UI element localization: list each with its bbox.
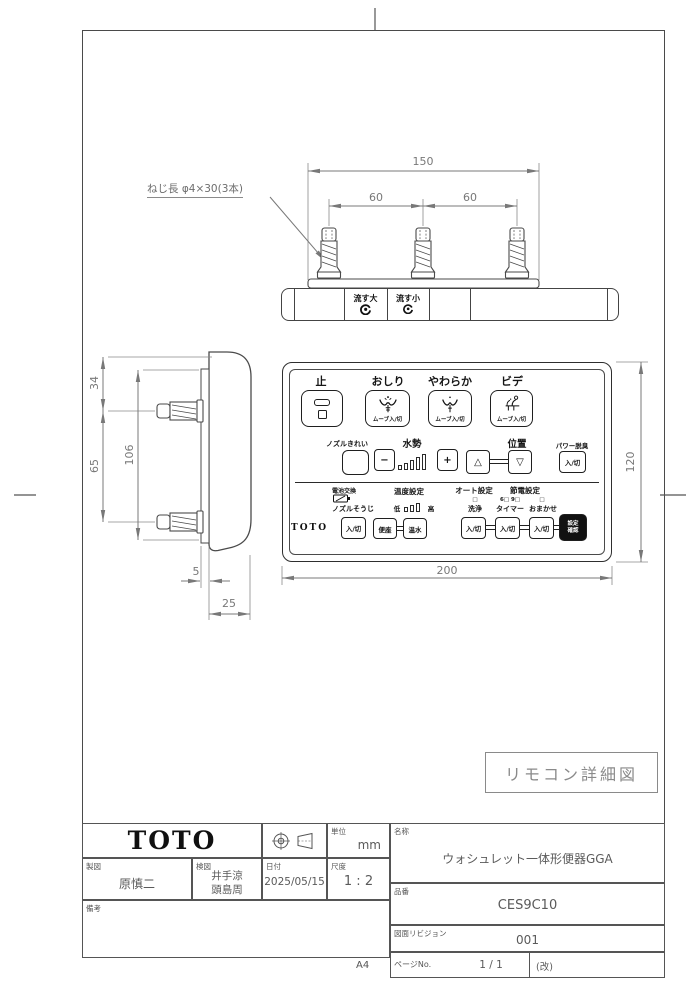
- rear-spray-icon: [376, 395, 400, 415]
- auto-wash-label: 洗浄: [462, 504, 488, 514]
- screw-icon: [412, 228, 435, 278]
- flush-small-label: 流す小: [396, 295, 420, 303]
- dim-pitch-right: 60: [445, 192, 495, 204]
- omakase-indicator: □: [534, 497, 550, 503]
- titleblock-scale-cell: 尺度 1 : 2: [327, 858, 390, 900]
- soft-spray-icon: [438, 395, 462, 415]
- power-deodorizer-label: パワー脱臭: [550, 440, 594, 450]
- move-onoff-label: ムーブ入/切: [435, 415, 464, 423]
- flush-large-label: 流す大: [354, 295, 378, 303]
- move-onoff-label: ムーブ入/切: [497, 415, 526, 423]
- dim-plate-thickness: 5: [186, 566, 206, 578]
- drawing-caption: リモコン詳細図: [505, 761, 638, 785]
- unit-label: 単位: [331, 826, 346, 837]
- top-view: [270, 163, 539, 288]
- titleblock-revision-cell: 図面リビジョン 001: [390, 925, 665, 952]
- dim-pitch-left: 60: [351, 192, 401, 204]
- flush-swirl-icon: [403, 304, 413, 314]
- setting-confirm-line2: 確認: [567, 528, 578, 535]
- setting-confirm-line1: 設定: [567, 521, 578, 528]
- titleblock-drafter-cell: 製図 原慎二: [82, 858, 192, 900]
- titleblock-unit-cell: 単位 mm: [327, 823, 390, 858]
- revision-value: 001: [391, 933, 664, 947]
- remote-brand-logo: TOTO: [291, 523, 327, 533]
- nozzle-wash-label: ノズルそうじ: [330, 504, 376, 514]
- date-value: 2025/05/15: [263, 876, 326, 888]
- unit-value: mm: [358, 838, 381, 852]
- titleblock-page-cell: ページNo. 1 / 1 (改): [390, 952, 665, 978]
- bidet-spray-icon: [500, 395, 524, 415]
- name-label: 名称: [394, 826, 409, 837]
- button-connector: [489, 459, 509, 464]
- position-label: 位置: [499, 436, 535, 450]
- energy-save-setting-label: 節電設定: [504, 485, 546, 496]
- auto-setting-label: オート設定: [452, 485, 496, 496]
- product-name: ウォシュレット一体形便器GGA: [391, 850, 664, 867]
- omakase-label: おまかせ: [527, 504, 559, 514]
- wash-indicator: □: [467, 497, 483, 503]
- third-angle-projection-icon: [272, 831, 318, 851]
- dim-screw-pitch-side: 65: [89, 449, 101, 483]
- move-onoff-label: ムーブ入/切: [373, 415, 402, 423]
- rear-wash-button: ムーブ入/切: [365, 390, 410, 427]
- position-down-button: ▽: [508, 450, 532, 474]
- soft-wash-label: やわらか: [420, 373, 480, 389]
- page-suffix: (改): [536, 959, 566, 973]
- page-label: ページNo.: [394, 959, 431, 970]
- temperature-level-bars: [404, 501, 424, 512]
- flush-large-button: 流す大: [344, 289, 387, 320]
- nozzle-wash-onoff-button: 入/切: [341, 517, 366, 539]
- page-value: 1 / 1: [451, 959, 531, 971]
- scale-label: 尺度: [331, 861, 346, 872]
- timer-hours-indicator: 6□ 9□: [495, 497, 525, 503]
- screw-icon: [506, 228, 529, 278]
- screw-icon: [157, 511, 203, 533]
- dim-overall-width: 150: [398, 156, 448, 168]
- battery-icon: [333, 494, 351, 503]
- panel-separator-line: [295, 482, 599, 483]
- screw-icon: [318, 228, 341, 278]
- stop-pill-icon: [314, 399, 330, 406]
- auto-wash-onoff-button: 入/切: [461, 517, 486, 539]
- checker-name-2: 頭島周: [193, 882, 261, 897]
- side-view: [103, 352, 251, 620]
- drawing-sheet: ねじ長 φ4×30(3本) 150 60 60 200 120 34 65 10…: [0, 0, 700, 991]
- titleblock-partno-cell: 品番 CES9C10: [390, 883, 665, 925]
- screw-length-note: ねじ長 φ4×30(3本): [147, 181, 243, 198]
- nozzle-clean-label: ノズルきれい: [322, 439, 372, 449]
- titleblock-logo-cell: TOTO: [82, 823, 262, 858]
- drafter-name: 原慎二: [83, 875, 191, 892]
- titleblock-remarks-cell: 備考: [82, 900, 390, 958]
- nozzle-clean-button: [342, 450, 369, 475]
- checker-name-1: 井手涼: [193, 868, 261, 883]
- temperature-setting-label: 温度設定: [389, 486, 429, 497]
- water-pressure-plus-button: +: [437, 449, 458, 471]
- mounting-plate: [308, 279, 539, 288]
- side-body: [209, 352, 251, 551]
- water-pressure-level-bars: [398, 451, 434, 470]
- brand-logo: TOTO: [128, 826, 217, 855]
- titleblock-checker-cell: 検図 井手涼 頭島周: [192, 858, 262, 900]
- bidet-button: ムーブ入/切: [490, 390, 533, 427]
- stop-label: 止: [299, 373, 343, 389]
- temp-high-label: 高: [426, 503, 436, 513]
- temp-low-label: 低: [392, 503, 402, 513]
- water-temp-button: 温水: [403, 518, 427, 539]
- timer-label: タイマー: [494, 504, 526, 514]
- position-up-button: △: [466, 450, 490, 474]
- page-cell-divider: [529, 953, 530, 977]
- dim-plate-height: 106: [124, 435, 136, 475]
- flush-button-strip: 流す大 流す小: [281, 288, 619, 321]
- date-label: 日付: [266, 861, 281, 872]
- dim-top-offset: 34: [89, 366, 101, 400]
- scale-value: 1 : 2: [328, 874, 389, 889]
- screw-icon: [157, 400, 203, 422]
- stop-button: [301, 390, 343, 427]
- drawing-caption-box: リモコン詳細図: [485, 752, 658, 793]
- remarks-label: 備考: [86, 903, 101, 914]
- flush-small-button: 流す小: [387, 289, 429, 320]
- paper-size-label: A4: [356, 960, 369, 971]
- part-no-value: CES9C10: [391, 898, 664, 913]
- drafter-label: 製図: [86, 861, 101, 872]
- water-pressure-label: 水勢: [394, 436, 430, 450]
- setting-confirm-button: 設定 確認: [559, 514, 587, 541]
- seat-temp-button: 便座: [373, 518, 397, 539]
- timer-onoff-button: 入/切: [495, 517, 520, 539]
- dim-face-width: 200: [422, 565, 472, 577]
- water-pressure-minus-button: −: [374, 449, 395, 471]
- omakase-onoff-button: 入/切: [529, 517, 554, 539]
- stop-square-icon: [318, 410, 327, 419]
- flush-swirl-icon: [360, 304, 371, 315]
- bidet-label: ビデ: [487, 373, 537, 389]
- dim-face-height: 120: [625, 442, 639, 482]
- power-deodorizer-onoff-button: 入/切: [559, 451, 586, 473]
- titleblock-name-cell: 名称 ウォシュレット一体形便器GGA: [390, 823, 665, 883]
- dim-body-depth: 25: [211, 598, 247, 610]
- titleblock-projection-cell: [262, 823, 327, 858]
- rear-wash-label: おしり: [363, 373, 413, 389]
- soft-wash-button: ムーブ入/切: [428, 390, 472, 427]
- titleblock-date-cell: 日付 2025/05/15: [262, 858, 327, 900]
- part-no-label: 品番: [394, 886, 409, 897]
